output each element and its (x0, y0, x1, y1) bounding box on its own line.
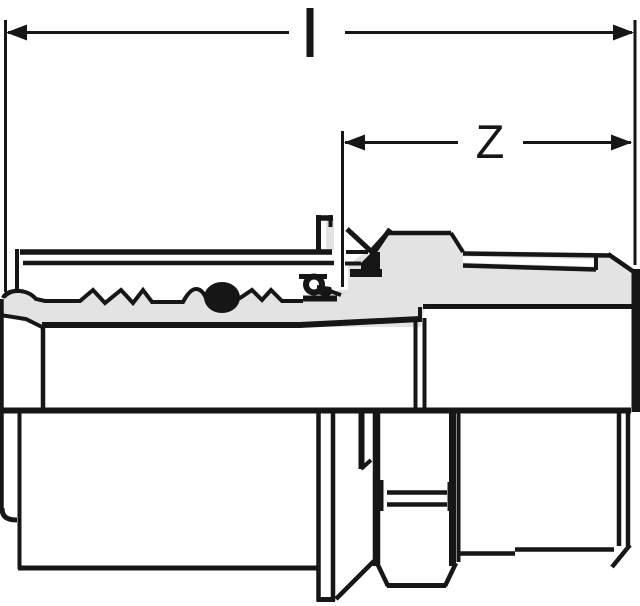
svg-text:Z: Z (476, 115, 505, 168)
